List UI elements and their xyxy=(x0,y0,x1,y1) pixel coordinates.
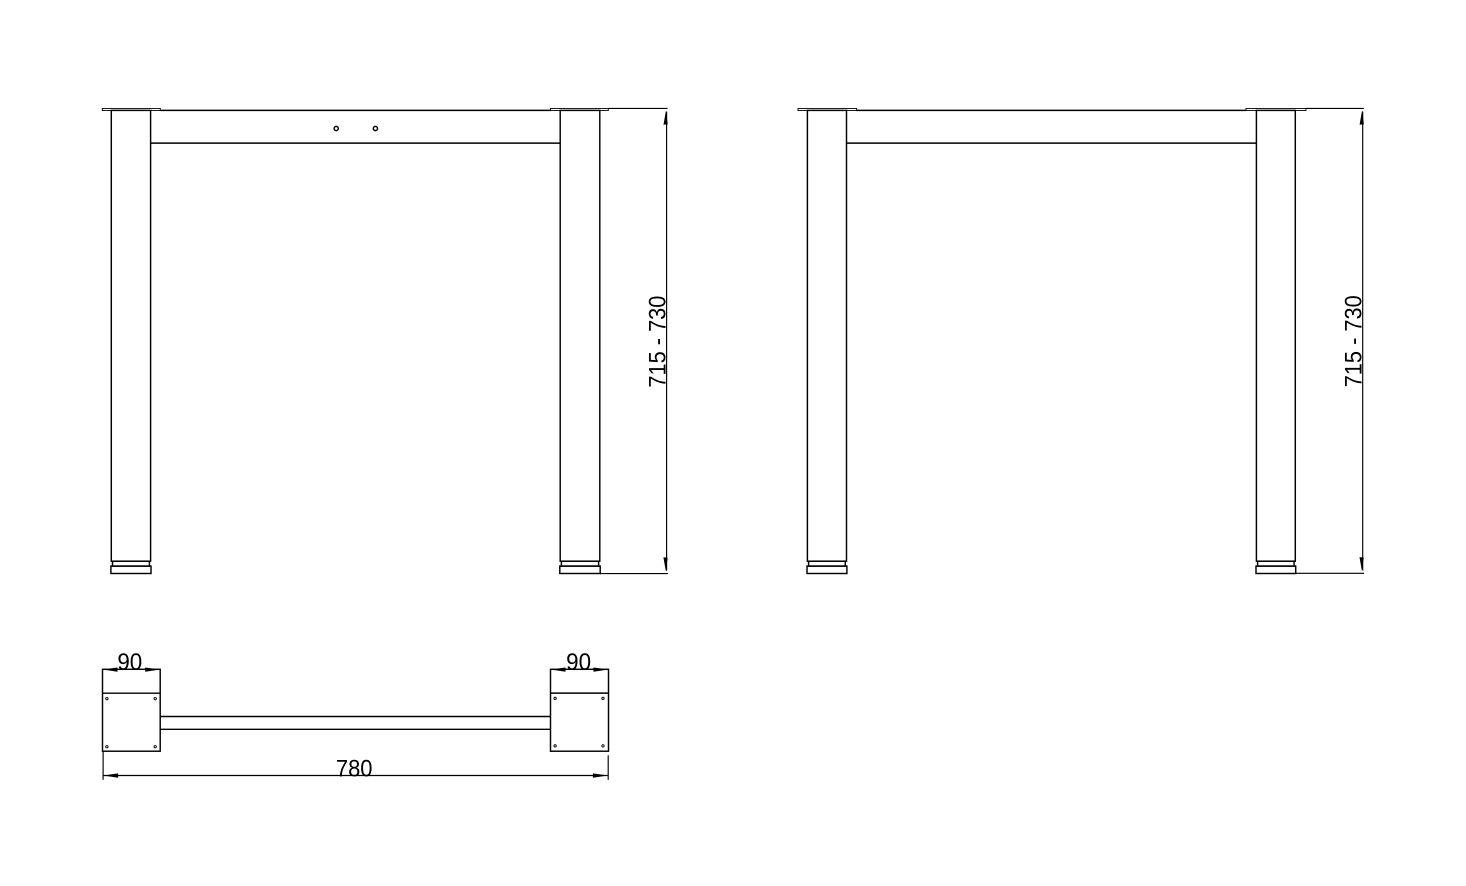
svg-text:90: 90 xyxy=(117,650,142,676)
svg-text:90: 90 xyxy=(566,650,591,676)
svg-text:715 - 730: 715 - 730 xyxy=(1342,295,1368,387)
svg-text:780: 780 xyxy=(336,756,373,782)
svg-text:715 - 730: 715 - 730 xyxy=(646,296,672,388)
